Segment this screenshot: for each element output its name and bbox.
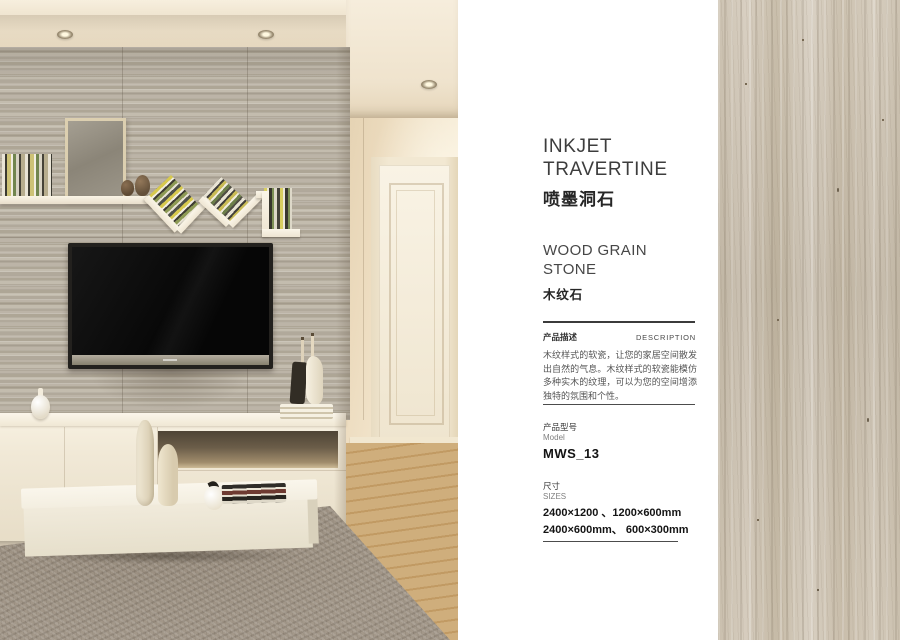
ceiling-soffit-shadow: [0, 15, 350, 47]
decor-sculpture: [290, 362, 308, 405]
coffee-table-side: [307, 495, 319, 543]
cabinet-open-shelf: [158, 431, 338, 468]
decor-sculpture: [306, 356, 323, 405]
books-row: [2, 154, 52, 196]
room-photo: [0, 0, 458, 640]
tv-brand-mark: [163, 359, 177, 361]
white-vase: [31, 395, 50, 419]
sizes-label-en: SIZES: [543, 492, 566, 501]
description-label-cn: 产品描述: [543, 331, 577, 343]
tv-wall-shadow: [88, 369, 253, 411]
spec-panel: INKJET TRAVERTINE 喷墨洞石 WOOD GRAIN STONE …: [458, 0, 718, 640]
catalog-page: INKJET TRAVERTINE 喷墨洞石 WOOD GRAIN STONE …: [0, 0, 900, 640]
model-number: MWS_13: [543, 446, 599, 461]
stacked-books: [280, 404, 333, 419]
decor-vase: [121, 180, 134, 196]
wall-mounted-tv: [68, 243, 273, 369]
model-label-cn: 产品型号: [543, 421, 577, 433]
ceiling-spotlight: [258, 30, 274, 39]
sizes-label-cn: 尺寸: [543, 480, 560, 492]
tall-vase: [136, 420, 154, 506]
ceiling-spotlight: [421, 80, 437, 89]
section-rule: [543, 541, 678, 542]
description-body: 木纹样式的软瓷，让您的家居空间散发出自然的气息。木纹样式的软瓷能模仿多种实木的纹…: [543, 349, 697, 404]
wall-mirror: [65, 118, 126, 201]
tile-seam: [0, 237, 350, 238]
category-cn: 木纹石: [543, 284, 583, 303]
magazine-stack: [222, 483, 287, 504]
description-header: 产品描述 DESCRIPTION: [543, 331, 696, 343]
product-title-cn: 喷墨洞石: [543, 185, 615, 210]
category-en-line2: STONE: [543, 261, 596, 278]
product-title-en-line1: INKJET: [543, 136, 612, 158]
tv-screen-glare: [72, 247, 269, 355]
category-en-line1: WOOD GRAIN: [543, 242, 647, 259]
floating-shelf: [0, 196, 153, 204]
product-title-en-line2: TRAVERTINE: [543, 159, 668, 181]
description-label-en: DESCRIPTION: [636, 333, 696, 342]
wall-edge-shadow: [336, 47, 350, 420]
sizes-line2: 2400×600mm、 600×300mm: [543, 521, 689, 537]
ceiling-spotlight: [57, 30, 73, 39]
sizes-line1: 2400×1200 、1200×600mm: [543, 504, 681, 520]
side-ceiling: [346, 0, 458, 118]
cabinet-seam: [158, 470, 346, 471]
section-rule: [543, 404, 695, 405]
decor-vase: [135, 175, 150, 196]
door-panel: [396, 190, 435, 416]
zigzag-shelf-segment: [262, 229, 300, 237]
model-label-en: Model: [543, 433, 565, 442]
section-rule: [543, 321, 695, 323]
bottle-vase: [158, 444, 178, 506]
travertine-swatch: [718, 0, 900, 640]
